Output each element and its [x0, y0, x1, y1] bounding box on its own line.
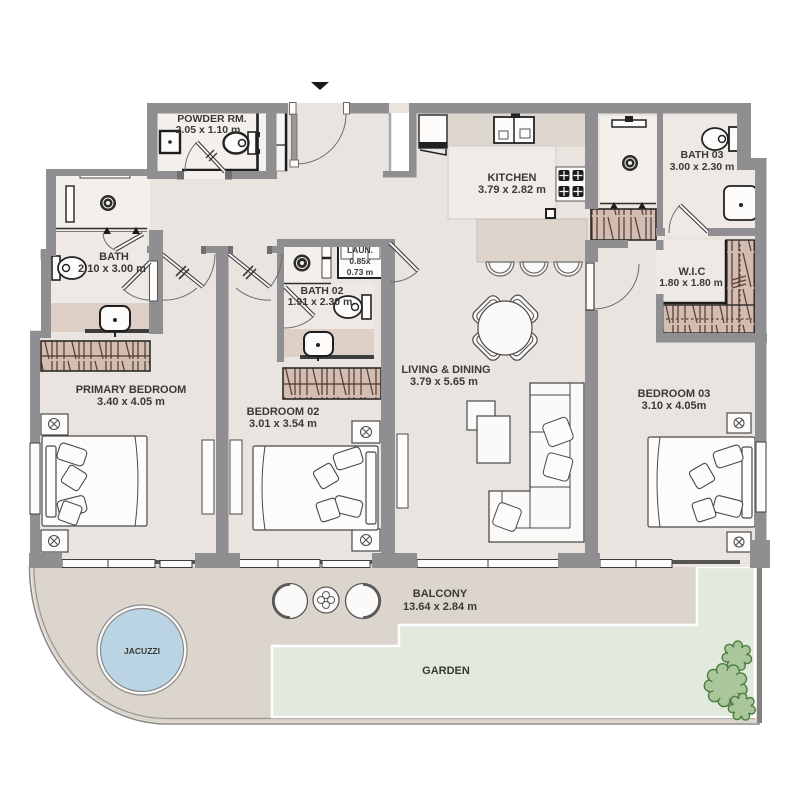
- svg-text:BALCONY: BALCONY: [413, 588, 468, 600]
- svg-text:LAUN.: LAUN.: [347, 245, 373, 255]
- svg-text:2.10 x 3.00 m: 2.10 x 3.00 m: [78, 263, 146, 275]
- svg-text:BEDROOM 02: BEDROOM 02: [247, 406, 320, 418]
- svg-text:BEDROOM 03: BEDROOM 03: [638, 388, 711, 400]
- svg-text:2.05 x 1.10 m: 2.05 x 1.10 m: [176, 124, 241, 136]
- svg-text:3.01 x 3.54 m: 3.01 x 3.54 m: [249, 418, 317, 430]
- svg-text:LIVING & DINING: LIVING & DINING: [401, 364, 490, 376]
- svg-text:1.80 x 1.80 m: 1.80 x 1.80 m: [659, 278, 723, 289]
- svg-text:3.79 x 2.82 m: 3.79 x 2.82 m: [478, 184, 546, 196]
- svg-text:13.64 x 2.84 m: 13.64 x 2.84 m: [403, 601, 477, 613]
- svg-text:0.73 m: 0.73 m: [347, 267, 374, 277]
- svg-text:W.I.C: W.I.C: [679, 266, 706, 278]
- svg-text:3.40 x 4.05 m: 3.40 x 4.05 m: [97, 396, 165, 408]
- svg-text:BATH: BATH: [99, 251, 129, 263]
- svg-text:3.00 x 2.30 m: 3.00 x 2.30 m: [670, 161, 735, 173]
- svg-text:3.79 x 5.65 m: 3.79 x 5.65 m: [410, 376, 478, 388]
- svg-text:JACUZZI: JACUZZI: [124, 646, 160, 656]
- svg-text:GARDEN: GARDEN: [422, 665, 470, 677]
- svg-text:PRIMARY BEDROOM: PRIMARY BEDROOM: [76, 384, 187, 396]
- svg-text:3.10 x 4.05m: 3.10 x 4.05m: [642, 400, 707, 412]
- svg-text:0.85x: 0.85x: [349, 256, 371, 266]
- svg-text:KITCHEN: KITCHEN: [488, 172, 537, 184]
- svg-text:1.91 x 2.30 m: 1.91 x 2.30 m: [288, 296, 353, 308]
- svg-text:BATH 03: BATH 03: [681, 149, 724, 161]
